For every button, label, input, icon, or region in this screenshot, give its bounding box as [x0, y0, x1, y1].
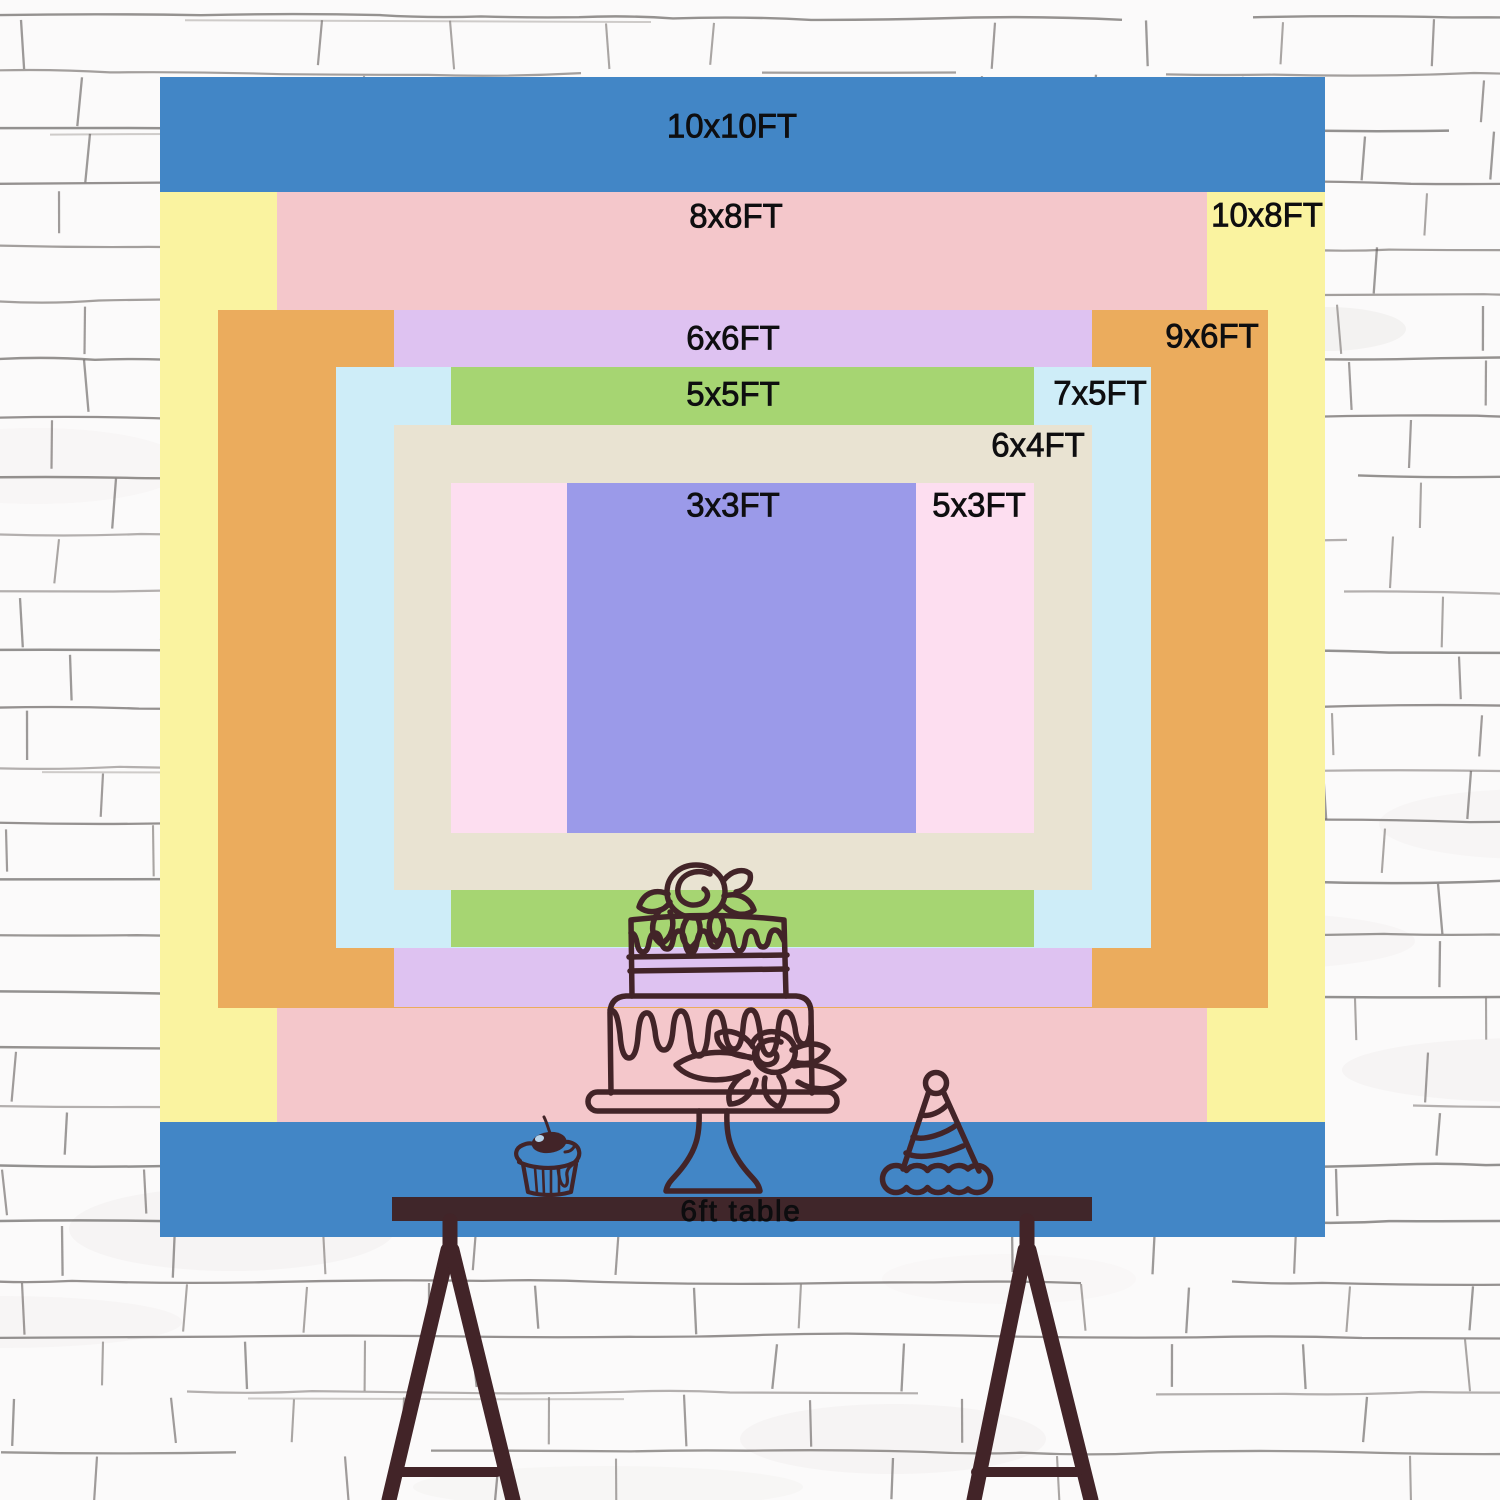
- svg-text:6ft table: 6ft table: [680, 1195, 801, 1228]
